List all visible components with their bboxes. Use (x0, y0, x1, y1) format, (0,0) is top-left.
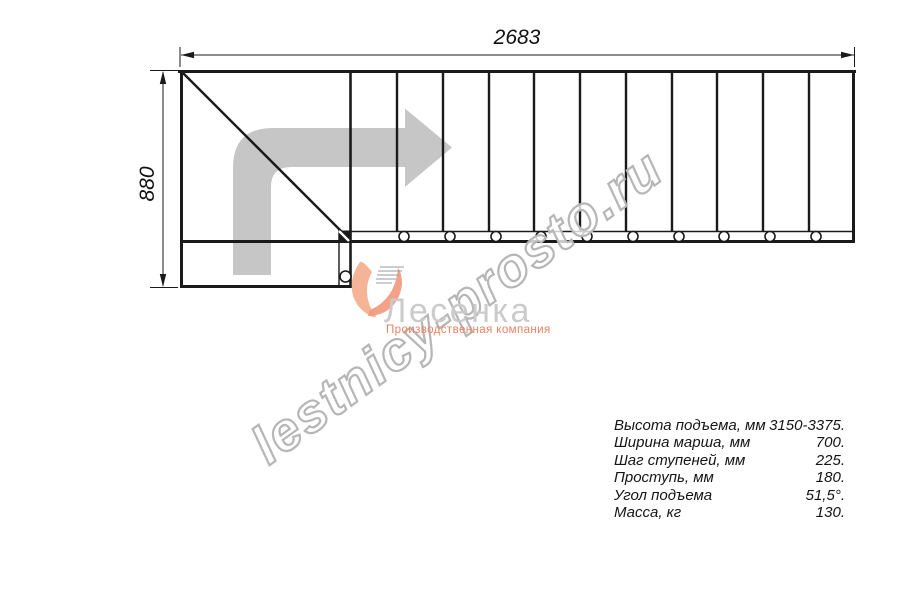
dimension-top (180, 47, 855, 67)
spec-value: 51,5°. (806, 487, 845, 504)
dim-arrow-up-icon (160, 71, 166, 84)
spec-label: Шаг ступеней, мм (614, 452, 745, 469)
baluster-circle (719, 232, 729, 242)
spec-table: Высота подъема, мм 3150-3375. Ширина мар… (614, 417, 845, 521)
spec-value: 130. (816, 504, 845, 521)
spec-label: Ширина марша, мм (614, 434, 750, 451)
baluster-circle (399, 232, 409, 242)
spec-row: Угол подъема 51,5°. (614, 487, 845, 504)
logo-tagline: Производственная компания (386, 324, 551, 336)
baluster-circle (628, 232, 638, 242)
spec-row: Шаг ступеней, мм 225. (614, 452, 845, 469)
spec-label: Проступь, мм (614, 469, 714, 486)
newel-post-hatch (339, 231, 350, 242)
baluster-circle (445, 232, 455, 242)
baluster-circle (674, 232, 684, 242)
spec-row: Ширина марша, мм 700. (614, 434, 845, 451)
dim-arrow-down-icon (160, 274, 166, 287)
baluster-circle (811, 232, 821, 242)
spec-value: 225. (816, 452, 845, 469)
spec-value: 700. (816, 434, 845, 451)
direction-arrow (233, 109, 452, 276)
dimension-height-label: 880 (136, 153, 160, 215)
spec-label: Высота подъема, мм (614, 417, 766, 434)
spec-row: Высота подъема, мм 3150-3375. (614, 417, 845, 434)
spec-value: 3150-3375. (769, 417, 845, 434)
screenshot-canvas: 2683 880 lestnicy-prosto.ru Лесенка Прои… (0, 0, 900, 600)
dim-arrow-right-icon (841, 52, 854, 58)
dimension-width-label: 2683 (452, 26, 582, 50)
spec-row: Масса, кг 130. (614, 504, 845, 521)
spec-row: Проступь, мм 180. (614, 469, 845, 486)
dim-arrow-left-icon (181, 52, 194, 58)
baluster-circle (765, 232, 775, 242)
spec-value: 180. (816, 469, 845, 486)
spec-label: Масса, кг (614, 504, 681, 521)
spec-label: Угол подъема (614, 487, 712, 504)
